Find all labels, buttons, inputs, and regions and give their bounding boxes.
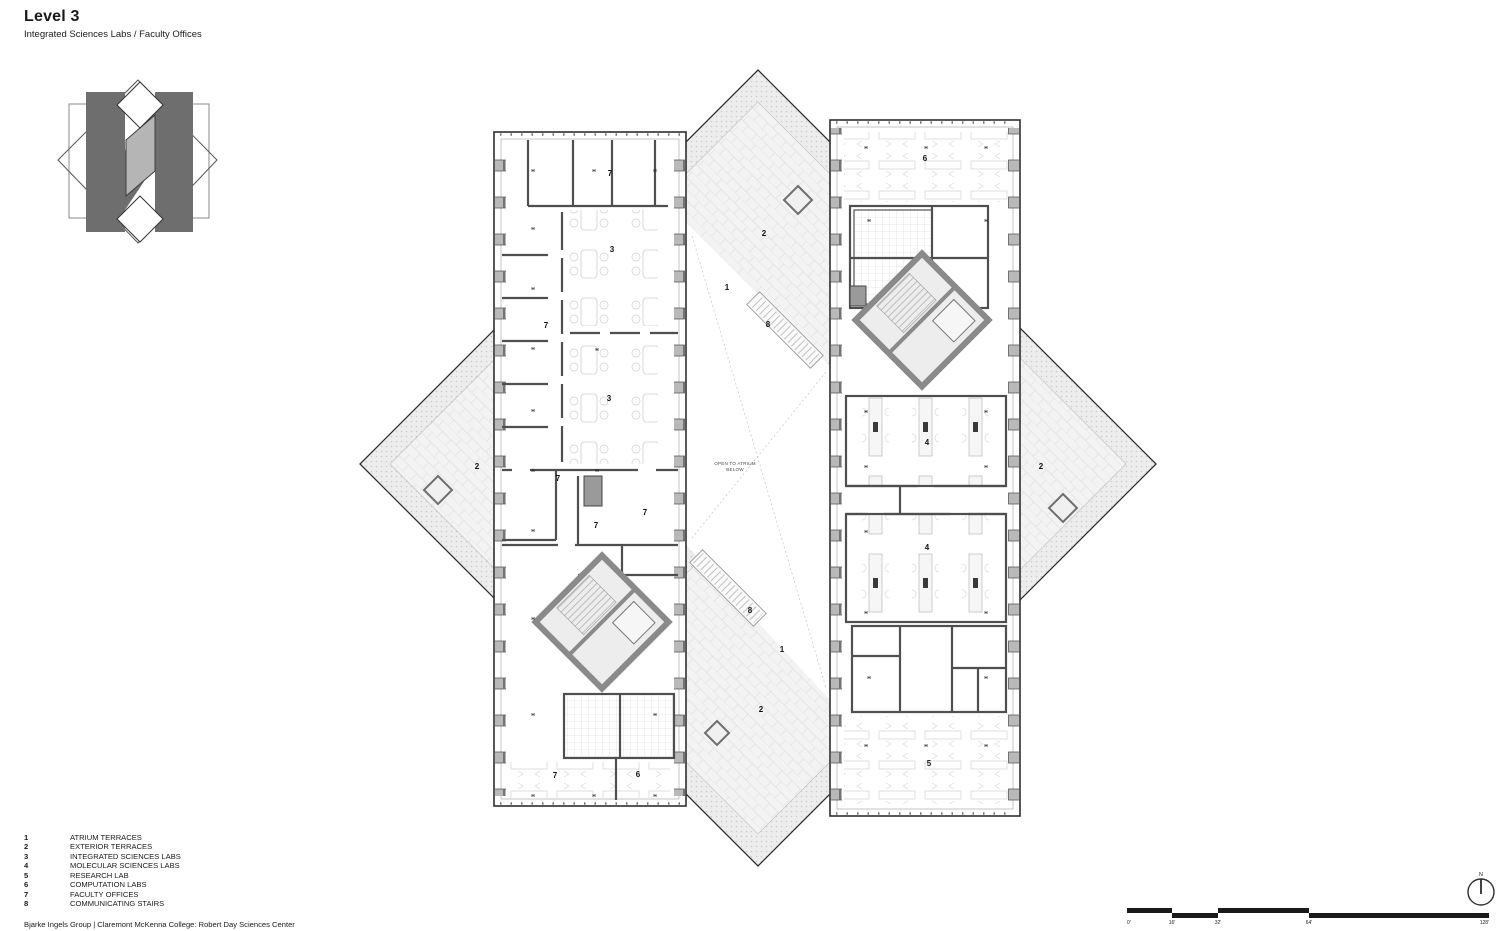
- column-row: [831, 128, 842, 808]
- room-label: 7: [643, 508, 648, 517]
- room-label: 1: [780, 645, 785, 654]
- room-label: 7: [608, 169, 613, 178]
- scale-tick: 128': [1480, 920, 1489, 926]
- north-label: N: [1479, 872, 1483, 878]
- lab-furniture: [844, 132, 1008, 202]
- room-label: 6: [923, 154, 928, 163]
- room-label: 7: [553, 771, 558, 780]
- scale-tick: 64': [1306, 920, 1313, 926]
- atrium-note: OPEN TO ATRIUM: [714, 461, 756, 466]
- building-key-logo: [58, 80, 217, 243]
- scale-tick: 32': [1215, 920, 1222, 926]
- room-label: 2: [475, 462, 480, 471]
- scale-tick: 0': [1127, 920, 1131, 926]
- left-building-bar: [494, 132, 686, 806]
- north-arrow-icon: N: [1468, 872, 1494, 905]
- lab-furniture: [566, 210, 658, 326]
- room-label: 7: [556, 474, 561, 483]
- room-label: 2: [1039, 462, 1044, 471]
- room-label: 8: [766, 320, 771, 329]
- room-label: 1: [725, 283, 730, 292]
- scale-tick: 16': [1169, 920, 1176, 926]
- small-rooms: [852, 626, 1006, 712]
- room-label: 7: [594, 521, 599, 530]
- room-label: 8: [748, 606, 753, 615]
- lab-furniture: [566, 338, 658, 464]
- floor-plan-drawing: 7 3 7 3 7 7 7 7 6 6 4 4 5 2 1 8 8 1 2 2 …: [0, 0, 1512, 931]
- column-row: [495, 140, 506, 796]
- room-label: 3: [610, 245, 615, 254]
- shaft: [584, 476, 602, 506]
- room-label: 3: [607, 394, 612, 403]
- room-label: 2: [762, 229, 767, 238]
- room-label: 6: [636, 770, 641, 779]
- atrium-note: BELOW: [726, 467, 744, 472]
- room-label: 7: [544, 321, 549, 330]
- restrooms: [564, 694, 674, 758]
- room-label: 2: [759, 705, 764, 714]
- scale-bar: 0' 16' 32' 64' 128': [1127, 908, 1489, 926]
- column-row: [1008, 128, 1019, 808]
- room-label: 4: [925, 543, 930, 552]
- column-row: [674, 140, 685, 796]
- room-label: 5: [927, 759, 932, 768]
- right-building-bar: [830, 120, 1020, 816]
- room-label: 4: [925, 438, 930, 447]
